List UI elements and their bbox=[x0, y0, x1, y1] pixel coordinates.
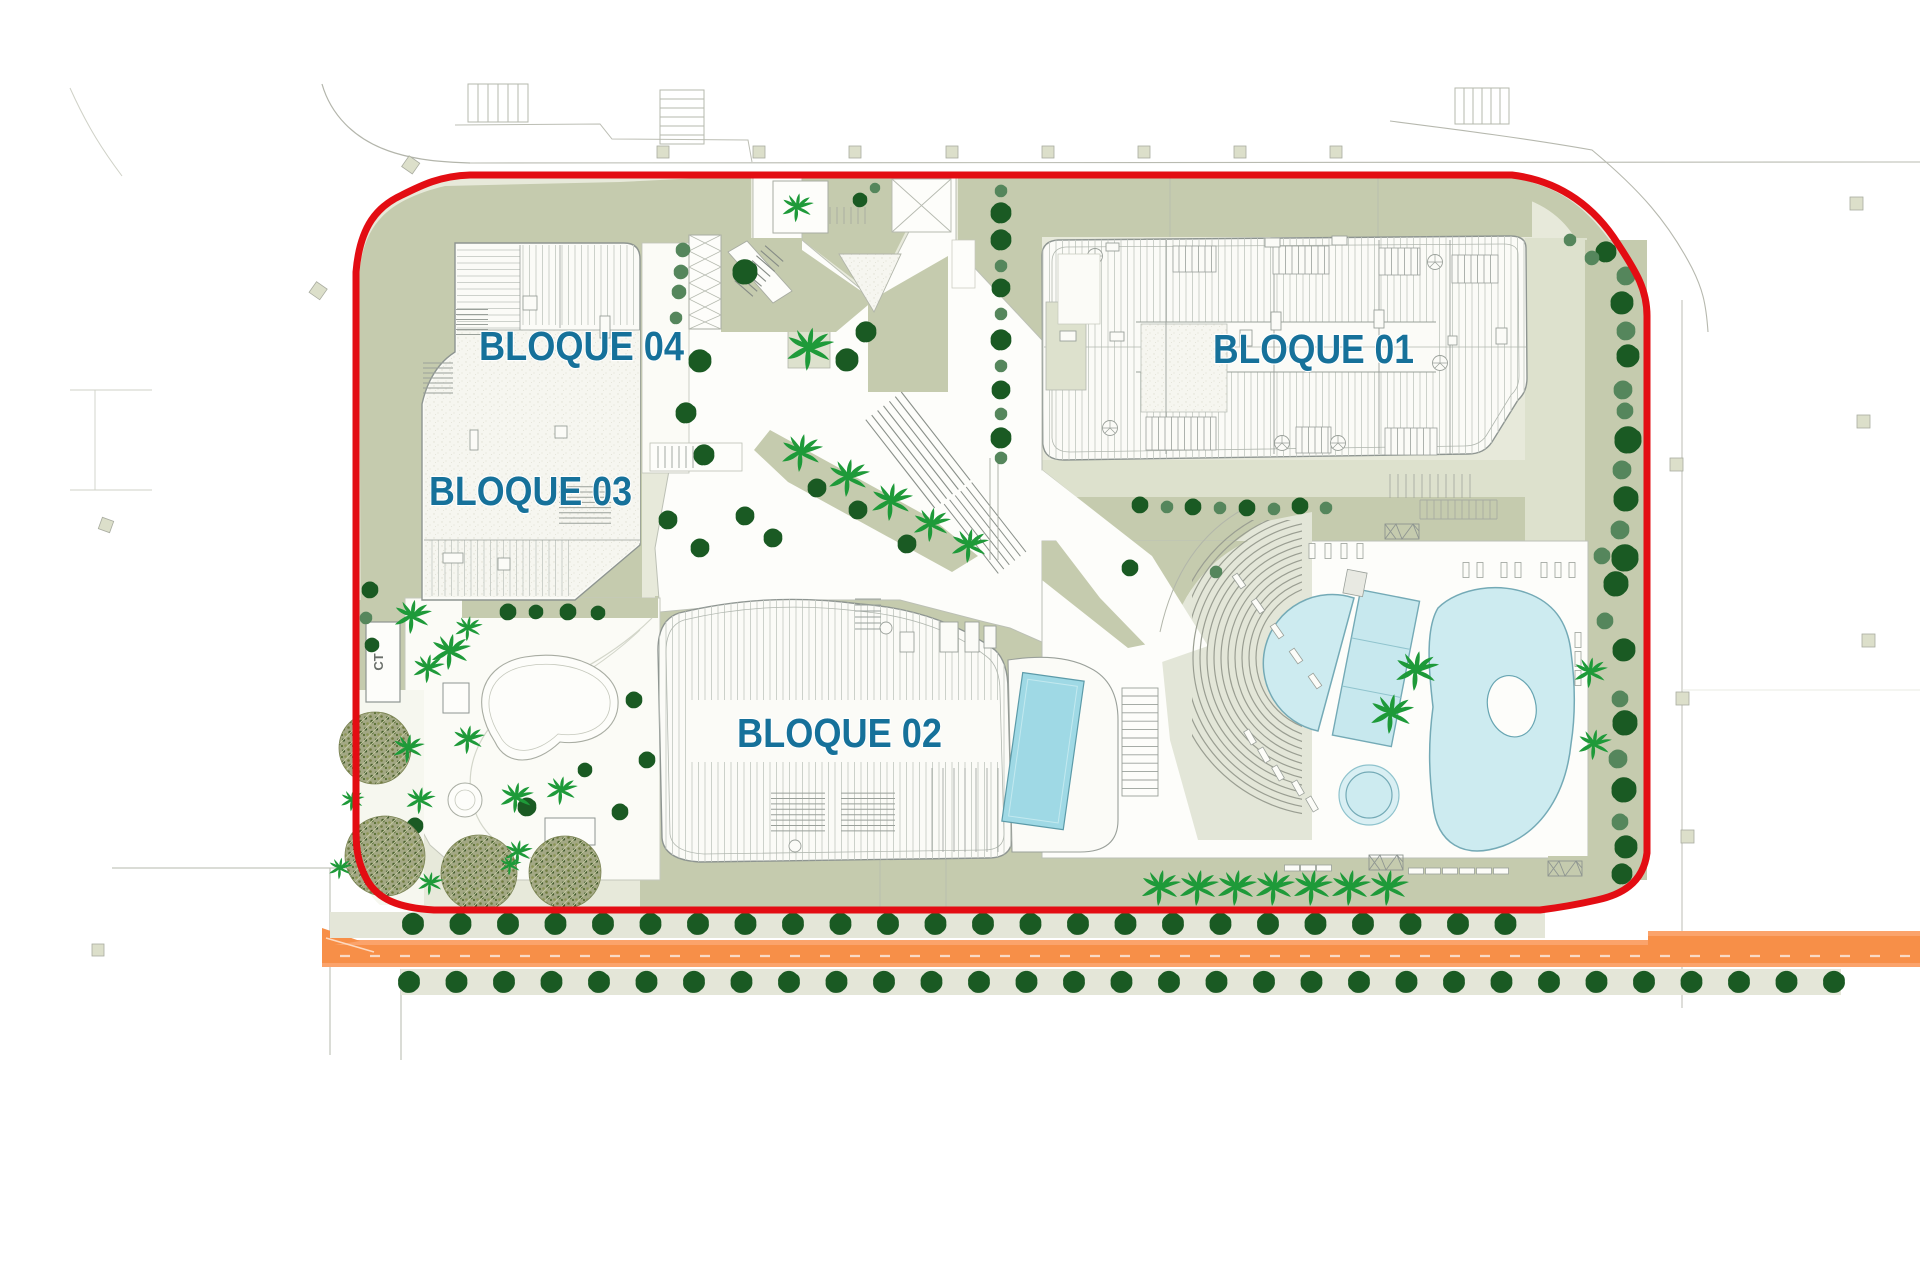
svg-text:BLOQUE 01: BLOQUE 01 bbox=[1213, 326, 1414, 372]
svg-text:CT: CT bbox=[371, 653, 386, 670]
svg-text:BLOQUE 03: BLOQUE 03 bbox=[429, 468, 632, 514]
svg-text:BLOQUE 04: BLOQUE 04 bbox=[479, 323, 684, 369]
svg-text:BLOQUE 02: BLOQUE 02 bbox=[737, 710, 942, 756]
